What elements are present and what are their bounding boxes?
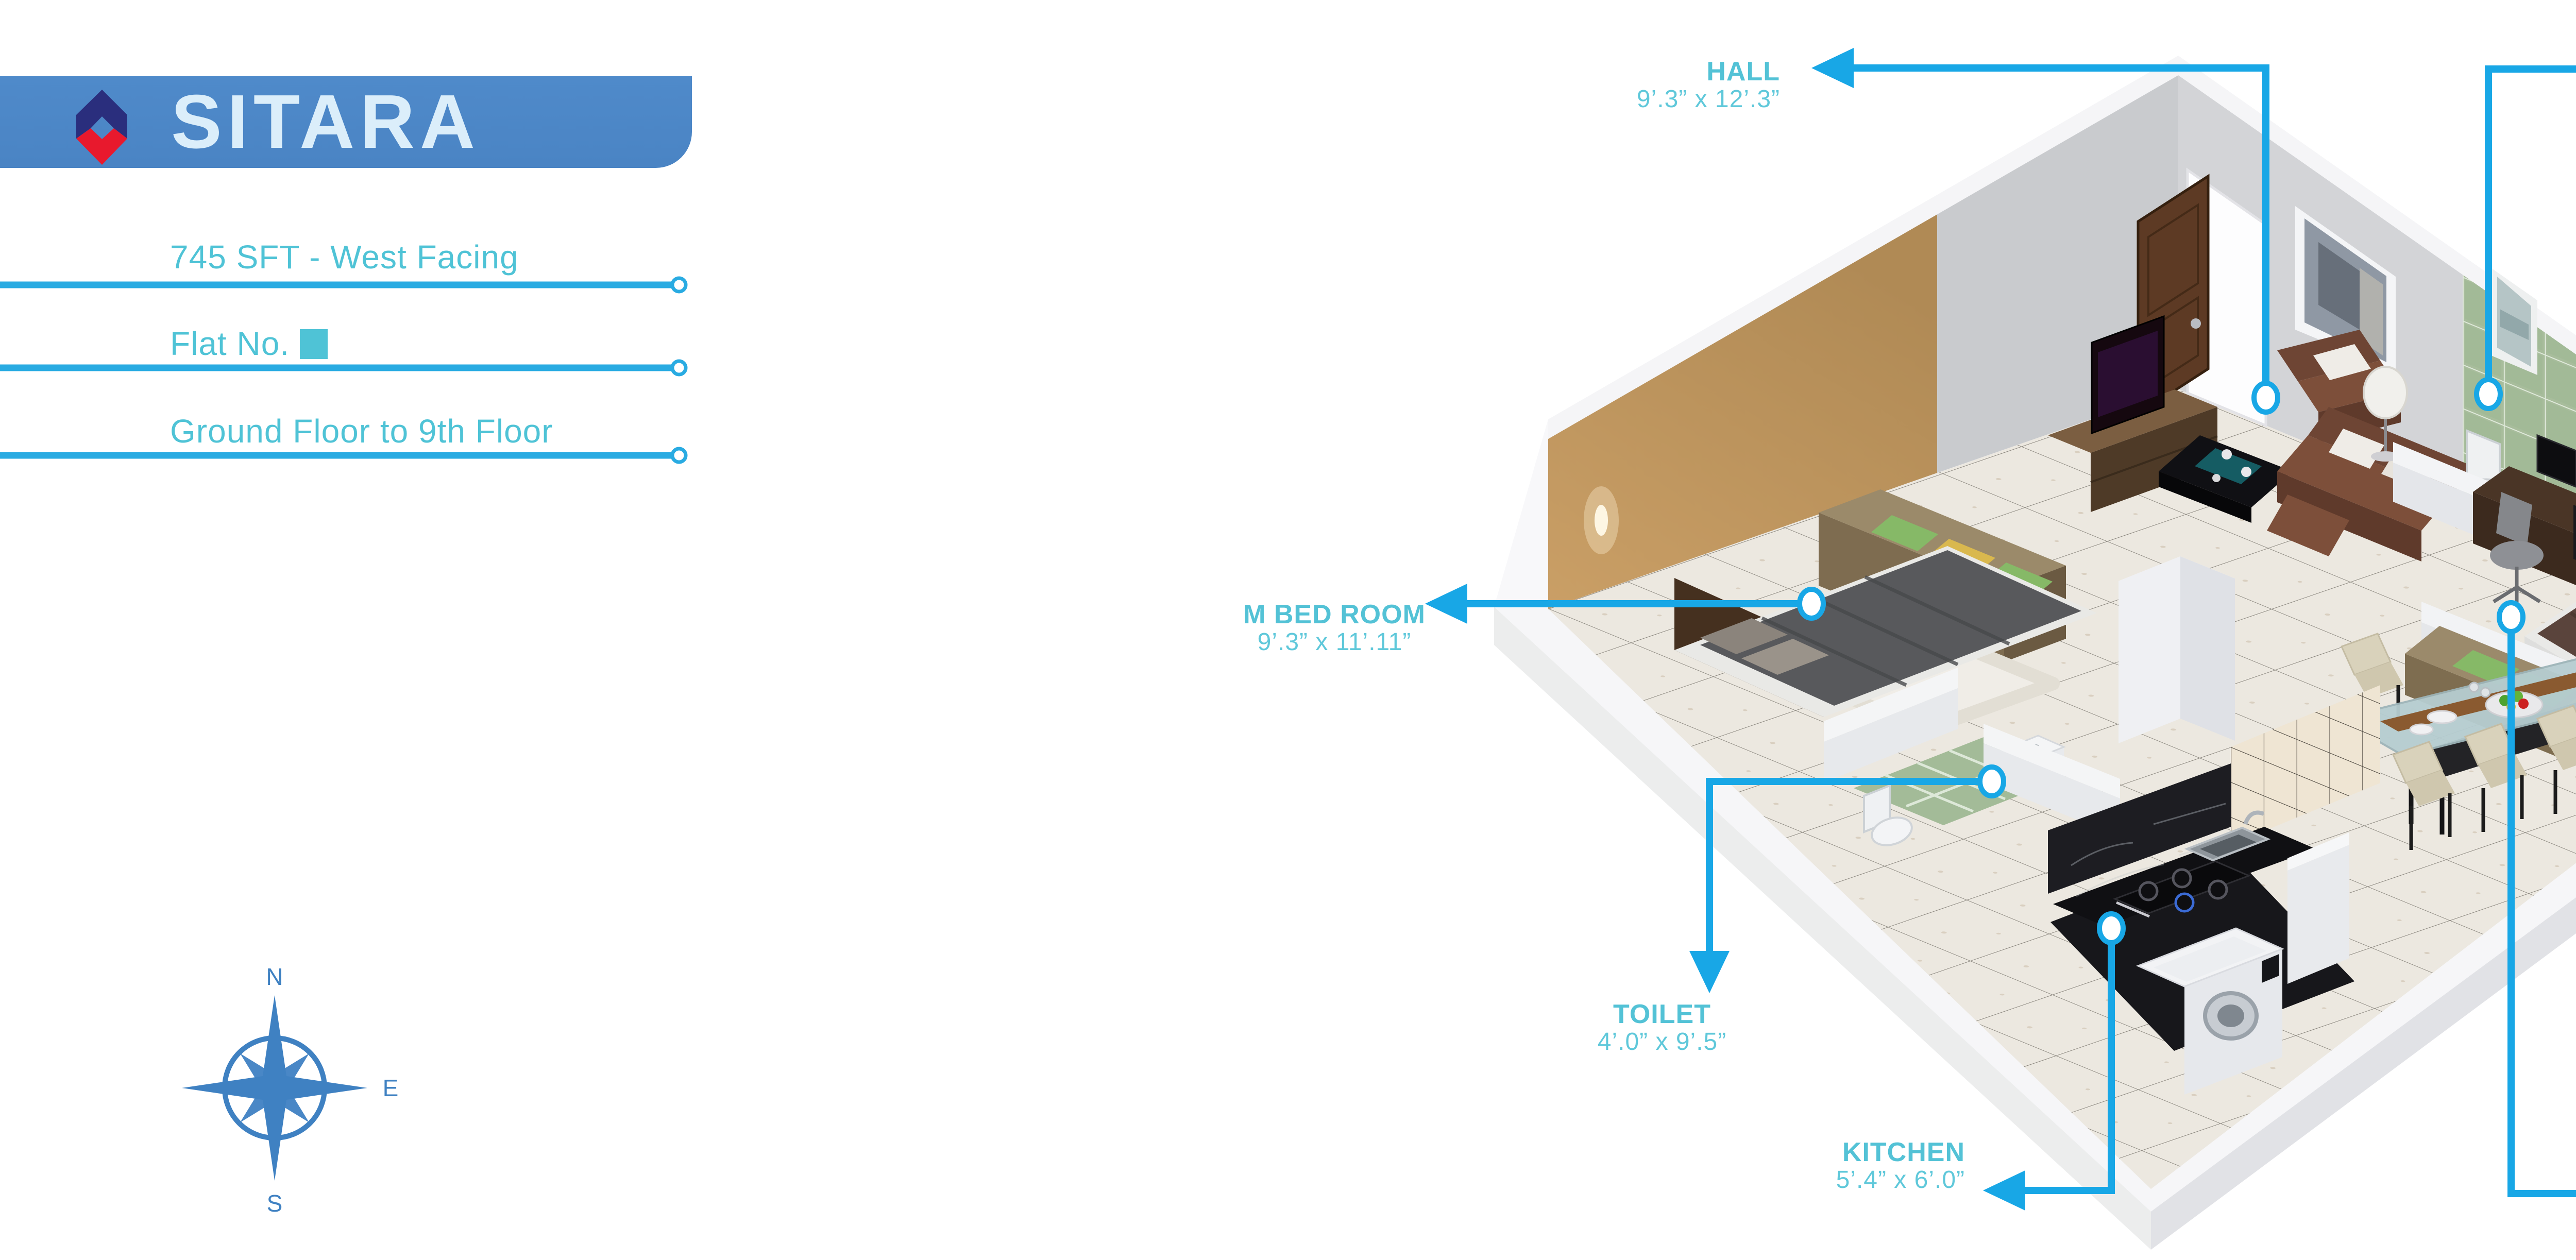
- info-line-sft: 745 SFT - West Facing: [170, 238, 519, 276]
- label-toilet-bottom: TOILET 4’.0” x 9’.5”: [1598, 1000, 1726, 1056]
- brand-title: SITARA: [171, 76, 480, 168]
- label-toilet-bottom-name: TOILET: [1598, 1000, 1726, 1028]
- compass-label-s: S: [267, 1190, 283, 1217]
- label-kitchen: KITCHEN 5’.4” x 6’.0”: [1836, 1138, 1965, 1194]
- dot-m-bedroom: [1800, 589, 1823, 618]
- info-line-flat-text: Flat No.: [170, 325, 290, 362]
- label-toilet-bottom-dims: 4’.0” x 9’.5”: [1598, 1028, 1726, 1056]
- dot-hall: [2254, 383, 2278, 412]
- label-m-bedroom-dims: 9’.3” x 11’.11”: [1243, 628, 1426, 656]
- flat-number-square: [300, 329, 328, 359]
- compass-rose: N E S: [182, 963, 398, 1217]
- door-handle: [2191, 318, 2201, 329]
- logo-red-diamond: [76, 128, 127, 165]
- brand-banner: SITARA: [0, 76, 692, 168]
- rule-end-ring-2: [672, 361, 686, 374]
- label-kitchen-dims: 5’.4” x 6’.0”: [1836, 1166, 1965, 1194]
- label-hall-dims: 9’.3” x 12’.3”: [1637, 86, 1780, 113]
- info-line-flat: Flat No.: [170, 325, 328, 363]
- dot-dining: [2499, 603, 2523, 632]
- info-line-floors: Ground Floor to 9th Floor: [170, 412, 553, 450]
- label-hall-name: HALL: [1637, 58, 1780, 86]
- white-pillar: [2119, 556, 2235, 743]
- compass-label-e: E: [383, 1075, 399, 1101]
- brand-logo: [61, 79, 128, 165]
- label-m-bedroom-name: M BED ROOM: [1243, 601, 1426, 628]
- arrow-toilet-bottom: [1689, 951, 1730, 993]
- rule-end-ring: [672, 278, 686, 292]
- logo-navy-diamond: [76, 90, 127, 139]
- arrow-kitchen: [1983, 1170, 2025, 1211]
- rule-end-ring-3: [672, 449, 686, 462]
- info-line-sft-text: 745 SFT - West Facing: [170, 239, 519, 276]
- compass-label-n: N: [266, 963, 283, 990]
- compass-main-star: [182, 995, 367, 1181]
- label-hall: HALL 9’.3” x 12’.3”: [1637, 58, 1780, 113]
- label-kitchen-name: KITCHEN: [1836, 1138, 1965, 1166]
- arrow-hall: [1811, 48, 1854, 88]
- floorplan-poster: N E S SITARA 745 SFT - West Facing Flat …: [0, 0, 2576, 1260]
- floorplan-render: [1494, 56, 2576, 1250]
- dot-kitchen: [2099, 914, 2123, 943]
- info-line-floors-text: Ground Floor to 9th Floor: [170, 413, 553, 450]
- dot-toilet-bottom: [1980, 767, 2004, 796]
- arrow-m-bedroom: [1425, 584, 1467, 624]
- dot-toilet-top: [2477, 380, 2500, 408]
- label-m-bedroom: M BED ROOM 9’.3” x 11’.11”: [1243, 601, 1426, 656]
